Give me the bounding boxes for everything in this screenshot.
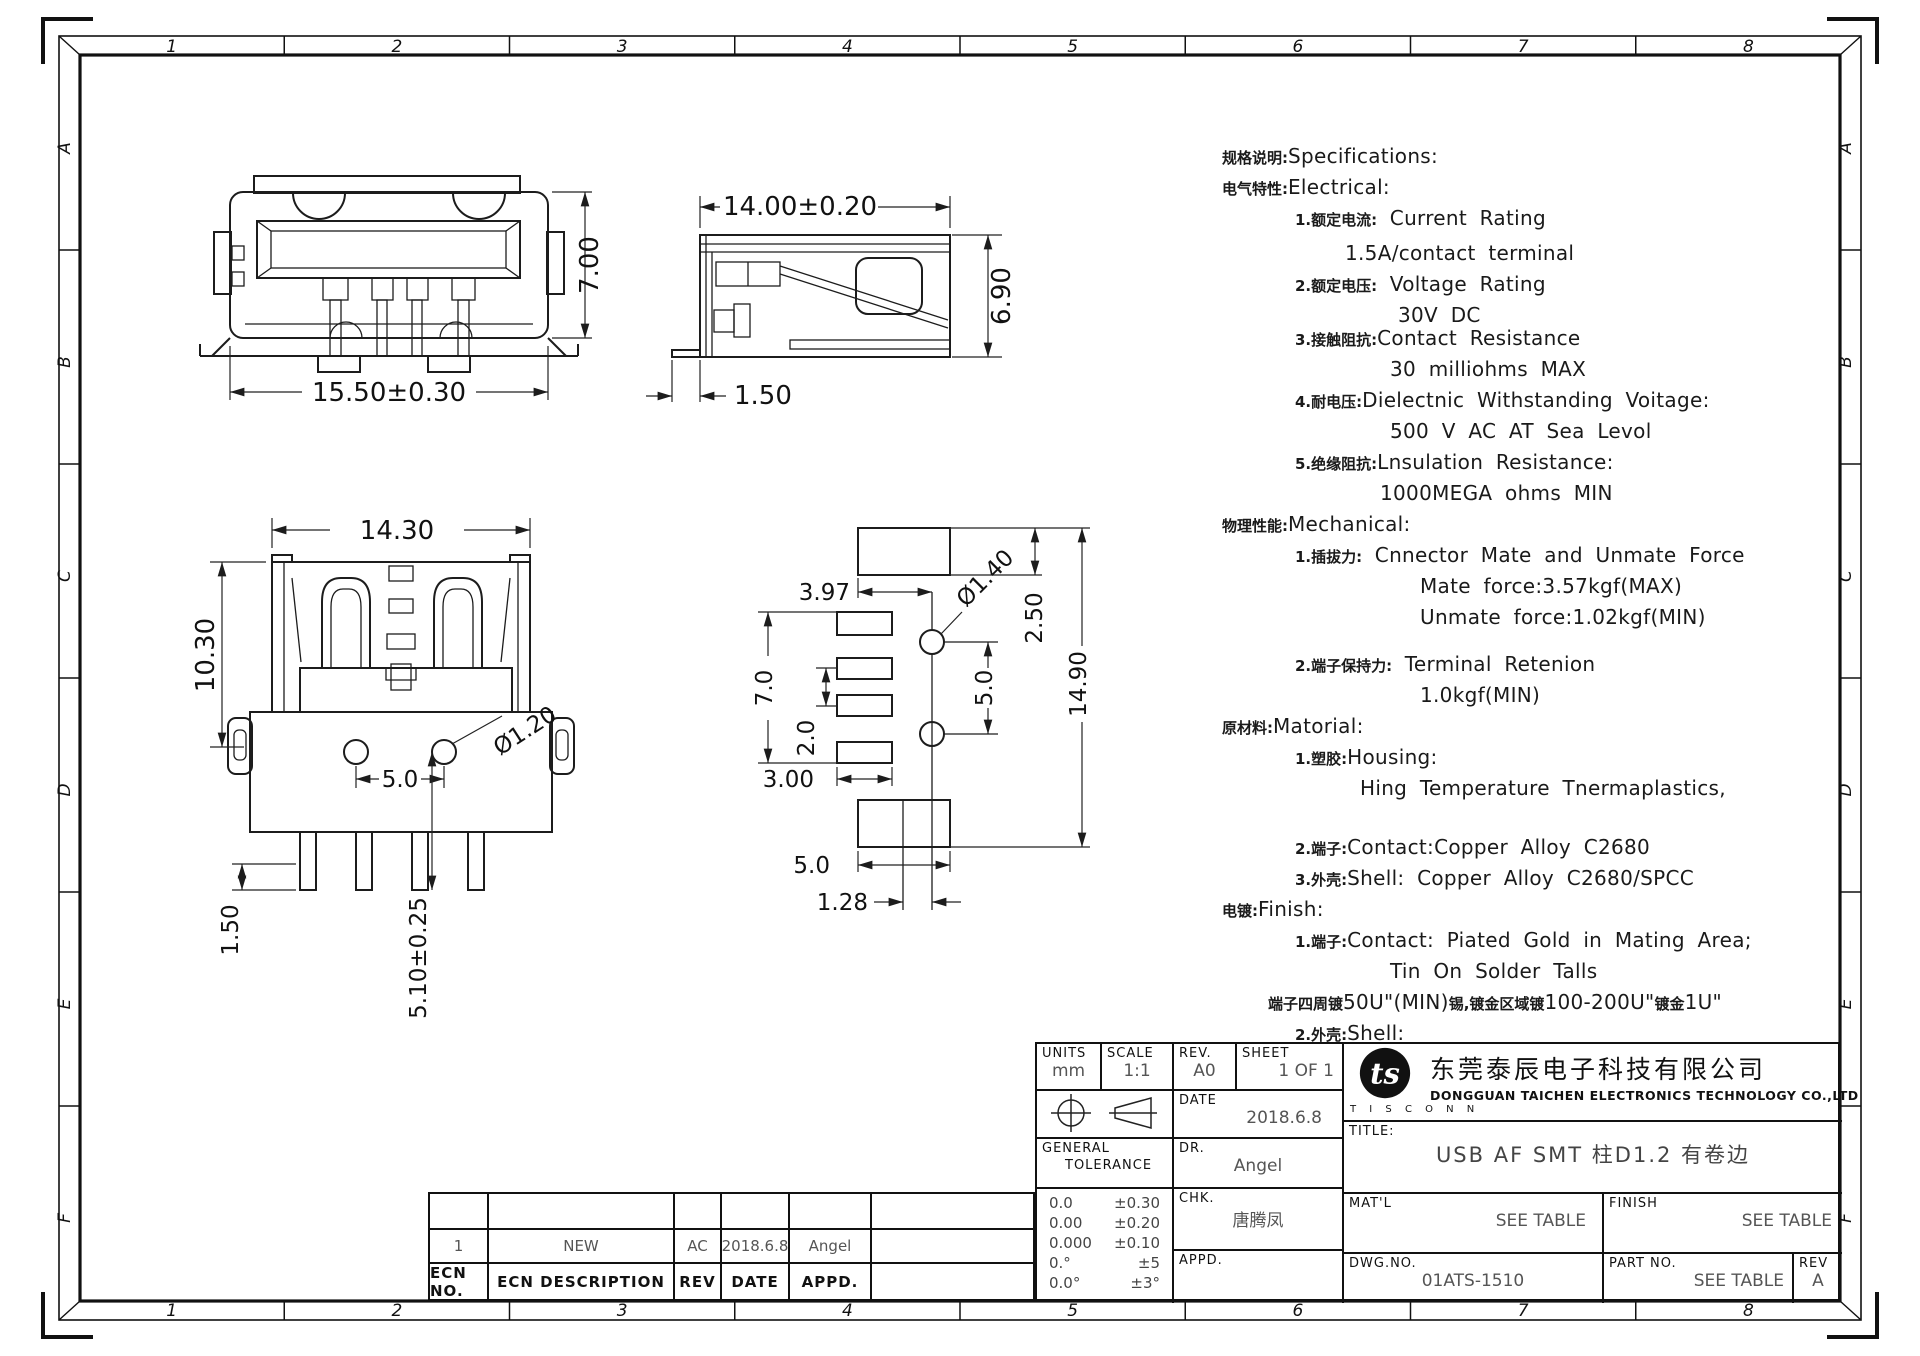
sheet-cell: SHEET 1 OF 1 bbox=[1237, 1044, 1342, 1089]
spec-text: 原材料: bbox=[1222, 719, 1273, 737]
general-tolerance-cell: GENERAL TOLERANCE bbox=[1037, 1137, 1174, 1187]
dim-bottom-width: 14.30 bbox=[360, 516, 434, 546]
logo-text: T I S C O N N bbox=[1350, 1104, 1479, 1115]
partno-cell: PART NO. SEE TABLE bbox=[1602, 1252, 1792, 1303]
spec-text: Current Rating bbox=[1377, 206, 1546, 230]
spec-text: 电气特性: bbox=[1222, 180, 1288, 198]
ecn-empty-cell bbox=[489, 1194, 675, 1228]
finish-cell: FINISH SEE TABLE bbox=[1602, 1192, 1842, 1252]
ecn-description-header: ECN DESCRIPTION bbox=[489, 1262, 675, 1299]
dim-fp-total-height: 14.90 bbox=[1066, 651, 1092, 717]
spec-text: Contact: Piated Gold in Mating Area; bbox=[1347, 928, 1752, 952]
spec-text: Finish: bbox=[1258, 897, 1324, 921]
spec-text: Lnsulation Resistance: bbox=[1377, 450, 1614, 474]
dim-side-height: 6.90 bbox=[987, 267, 1017, 325]
ecn-empty-cell bbox=[872, 1262, 1033, 1299]
partno-label: PART NO. bbox=[1604, 1254, 1792, 1271]
dim-front-height: 7.00 bbox=[575, 236, 605, 294]
spec-text: 1.0kgf(MIN) bbox=[1420, 683, 1540, 707]
ecn-empty-cell bbox=[872, 1228, 1033, 1262]
spec-line: Hing Temperature Tnermaplastics, bbox=[1222, 777, 1862, 801]
spec-line: 1.5A/contact terminal bbox=[1222, 242, 1862, 266]
dim-fp-pad-height: 2.50 bbox=[1022, 592, 1048, 643]
ecn-description-value: NEW bbox=[489, 1228, 675, 1262]
spec-text: 1U" bbox=[1685, 990, 1722, 1014]
spec-text: Hing Temperature Tnermaplastics, bbox=[1360, 776, 1726, 800]
company-name-cn: 东莞泰辰电子科技有限公司 bbox=[1430, 1050, 1766, 1086]
tolerance-row: 0.°±5 bbox=[1037, 1253, 1172, 1273]
spec-line: 4.耐电压:Dielectnic Withstanding Voitage: bbox=[1222, 389, 1862, 413]
spec-line: 物理性能:Mechanical: bbox=[1222, 513, 1862, 537]
dim-bottom-leg: 1.50 bbox=[218, 904, 244, 955]
spec-text: 1.额定电流: bbox=[1295, 211, 1377, 229]
spec-text: 50U"(MIN) bbox=[1343, 990, 1449, 1014]
matl-value: SEE TABLE bbox=[1344, 1211, 1602, 1231]
chk-value: 唐腾凤 bbox=[1174, 1206, 1342, 1231]
dim-bottom-pitch: 5.0 bbox=[382, 767, 419, 793]
spec-text: Terminal Retenion bbox=[1392, 652, 1595, 676]
spec-text: 4.耐电压: bbox=[1295, 393, 1362, 411]
spec-line: 规格说明:Specifications: bbox=[1222, 145, 1862, 169]
spec-text: Contact Resistance bbox=[1377, 326, 1580, 350]
bottom-view: 14.30 10.30 Ø1.20 5.0 1.50 5.10±0.25 bbox=[191, 516, 574, 1019]
spec-line: 1.额定电流: Current Rating bbox=[1222, 207, 1862, 231]
dwgno-cell: DWG.NO. 01ATS-1510 bbox=[1342, 1252, 1602, 1303]
spec-text: 锡,镀金区域镀 bbox=[1449, 995, 1545, 1013]
ecn-date-value: 2018.6.8 bbox=[722, 1228, 790, 1262]
spec-line: 2.端子:Contact:Copper Alloy C2680 bbox=[1222, 836, 1862, 860]
title-block: UNITS mm SCALE 1:1 REV. A0 SHEET 1 OF 1 bbox=[1035, 1042, 1840, 1301]
spec-line: 2.额定电压: Voltage Rating bbox=[1222, 273, 1862, 297]
spec-text: 30V DC bbox=[1398, 303, 1481, 327]
ecn-date-header: DATE bbox=[722, 1262, 790, 1299]
spec-text: 30 milliohms MAX bbox=[1390, 357, 1586, 381]
sheet-value: 1 OF 1 bbox=[1237, 1061, 1342, 1081]
spec-line: Mate force:3.57kgf(MAX) bbox=[1222, 575, 1862, 599]
svg-text:ts: ts bbox=[1370, 1057, 1400, 1091]
spec-text: Shell: Copper Alloy C2680/SPCC bbox=[1347, 866, 1694, 890]
ecn-table: 1 NEW AC 2018.6.8 Angel ECN NO. ECN DESC… bbox=[428, 1192, 1035, 1301]
dim-fp-pad-offset: 3.97 bbox=[799, 580, 850, 606]
specifications: 规格说明:Specifications:电气特性:Electrical:1.额定… bbox=[1222, 138, 1862, 1122]
spec-text: 1.塑胶: bbox=[1295, 750, 1347, 768]
rev2-label: REV bbox=[1794, 1254, 1842, 1271]
sheet-label: SHEET bbox=[1237, 1044, 1342, 1061]
company-logo-icon: ts bbox=[1354, 1046, 1416, 1104]
spec-line: 2.端子保持力: Terminal Retenion bbox=[1222, 653, 1862, 677]
projection-cell bbox=[1037, 1089, 1174, 1137]
spec-text: 物理性能: bbox=[1222, 517, 1288, 535]
appd-label: APPD. bbox=[1174, 1251, 1342, 1268]
spec-text: Mate force:3.57kgf(MAX) bbox=[1420, 574, 1682, 598]
spec-line: Unmate force:1.02kgf(MIN) bbox=[1222, 606, 1862, 630]
spec-text: Contact:Copper Alloy C2680 bbox=[1347, 835, 1650, 859]
spec-text: Specifications: bbox=[1288, 144, 1438, 168]
tolerance-row: 0.000±0.10 bbox=[1037, 1233, 1172, 1253]
dim-front-width: 15.50±0.30 bbox=[312, 378, 466, 408]
ecn-empty-cell bbox=[790, 1194, 872, 1228]
spec-text: 3.接触阻抗: bbox=[1295, 331, 1377, 349]
spec-line: 电气特性:Electrical: bbox=[1222, 176, 1862, 200]
scale-cell: SCALE 1:1 bbox=[1102, 1044, 1174, 1089]
ecn-no-header: ECN NO. bbox=[430, 1262, 489, 1299]
rev2-value: A bbox=[1794, 1271, 1842, 1291]
tolerance-row: 0.0±0.30 bbox=[1037, 1193, 1172, 1213]
spec-text: 镀金 bbox=[1655, 995, 1685, 1013]
spec-text: Cnnector Mate and Unmate Force bbox=[1362, 543, 1745, 567]
spec-text: 1.端子: bbox=[1295, 933, 1347, 951]
spec-text: 规格说明: bbox=[1222, 149, 1288, 167]
dim-fp-pad2-width: 5.0 bbox=[793, 853, 830, 879]
ecn-appd-header: APPD. bbox=[790, 1262, 872, 1299]
matl-cell: MAT'L SEE TABLE bbox=[1342, 1192, 1602, 1252]
title-cell: TITLE: USB AF SMT 柱D1.2 有卷边 bbox=[1342, 1120, 1842, 1192]
units-label: UNITS bbox=[1037, 1044, 1100, 1061]
general-tolerance-label-2: TOLERANCE bbox=[1037, 1156, 1172, 1173]
footprint-view: 3.97 7.0 2.0 3.00 Ø1.40 2.50 bbox=[752, 528, 1092, 916]
front-view: 7.00 15.50±0.30 bbox=[200, 176, 605, 408]
units-value: mm bbox=[1037, 1061, 1100, 1081]
spec-line: 端子四周镀50U"(MIN)锡,镀金区域镀100-200U"镀金1U" bbox=[1222, 991, 1862, 1015]
title-label: TITLE: bbox=[1344, 1122, 1842, 1139]
spec-line: 1000MEGA ohms MIN bbox=[1222, 482, 1862, 506]
rev-value: A0 bbox=[1174, 1061, 1235, 1081]
dim-fp-hole-pitch: 5.0 bbox=[972, 670, 998, 707]
dim-fp-pad-width: 3.00 bbox=[763, 767, 814, 793]
spec-text: 端子四周镀 bbox=[1268, 995, 1343, 1013]
spec-text: Matorial: bbox=[1273, 714, 1364, 738]
spec-text: Voltage Rating bbox=[1377, 272, 1546, 296]
spec-text: Electrical: bbox=[1288, 175, 1390, 199]
spec-line: 1.端子:Contact: Piated Gold in Mating Area… bbox=[1222, 929, 1862, 953]
matl-label: MAT'L bbox=[1344, 1194, 1602, 1211]
spec-line: Tin On Solder Talls bbox=[1222, 960, 1862, 984]
spec-text: 5.绝缘阻抗: bbox=[1295, 455, 1377, 473]
partno-value: SEE TABLE bbox=[1604, 1271, 1792, 1291]
spec-text: 1.5A/contact terminal bbox=[1345, 241, 1574, 265]
dr-cell: DR. Angel bbox=[1174, 1137, 1342, 1187]
finish-label: FINISH bbox=[1604, 1194, 1842, 1211]
spec-text: Housing: bbox=[1347, 745, 1437, 769]
spec-text: 500 V AC AT Sea Levol bbox=[1390, 419, 1652, 443]
chk-cell: CHK. 唐腾凤 bbox=[1174, 1187, 1342, 1249]
spec-line: 5.绝缘阻抗:Lnsulation Resistance: bbox=[1222, 451, 1862, 475]
scale-label: SCALE bbox=[1102, 1044, 1172, 1061]
spec-line: 电镀:Finish: bbox=[1222, 898, 1862, 922]
company-band: ts T I S C O N N 东莞泰辰电子科技有限公司 DONGGUAN T… bbox=[1342, 1044, 1842, 1120]
tolerance-row: 0.00±0.20 bbox=[1037, 1213, 1172, 1233]
spec-line: 500 V AC AT Sea Levol bbox=[1222, 420, 1862, 444]
ecn-appd-value: Angel bbox=[790, 1228, 872, 1262]
spec-line: 3.接触阻抗:Contact Resistance bbox=[1222, 327, 1862, 351]
spec-text: 2.端子: bbox=[1295, 840, 1347, 858]
spec-line: 3.外壳:Shell: Copper Alloy C2680/SPCC bbox=[1222, 867, 1862, 891]
dim-side-foot: 1.50 bbox=[734, 381, 792, 411]
spec-line: 30V DC bbox=[1222, 304, 1862, 328]
date-label: DATE bbox=[1174, 1091, 1342, 1108]
chk-label: CHK. bbox=[1174, 1189, 1342, 1206]
finish-value: SEE TABLE bbox=[1604, 1211, 1842, 1231]
spec-text: 100-200U" bbox=[1544, 990, 1654, 1014]
company-name-en: DONGGUAN TAICHEN ELECTRONICS TECHNOLOGY … bbox=[1430, 1088, 1859, 1103]
ecn-empty-cell bbox=[675, 1194, 722, 1228]
spec-line: 1.0kgf(MIN) bbox=[1222, 684, 1862, 708]
ecn-rev-value: AC bbox=[675, 1228, 722, 1262]
dim-fp-pads-span: 7.0 bbox=[752, 670, 778, 707]
spec-text: 电镀: bbox=[1222, 902, 1258, 920]
ecn-empty-cell bbox=[872, 1194, 1033, 1228]
dwgno-label: DWG.NO. bbox=[1344, 1254, 1602, 1271]
tolerance-values: 0.0±0.300.00±0.200.000±0.100.°±50.0°±3° bbox=[1037, 1187, 1174, 1303]
spec-text: Unmate force:1.02kgf(MIN) bbox=[1420, 605, 1706, 629]
side-view: 14.00±0.20 6.90 1.50 bbox=[646, 192, 1017, 411]
dr-label: DR. bbox=[1174, 1139, 1342, 1156]
ecn-empty-cell bbox=[722, 1194, 790, 1228]
spec-text: Mechanical: bbox=[1288, 512, 1411, 536]
scale-value: 1:1 bbox=[1102, 1061, 1172, 1081]
dr-value: Angel bbox=[1174, 1156, 1342, 1176]
dim-fp-pad-pitch: 2.0 bbox=[794, 720, 820, 757]
tolerance-row: 0.0°±3° bbox=[1037, 1273, 1172, 1293]
spec-line: 30 milliohms MAX bbox=[1222, 358, 1862, 382]
spec-text: 1.插拔力: bbox=[1295, 548, 1362, 566]
spec-line: 原材料:Matorial: bbox=[1222, 715, 1862, 739]
appd-cell: APPD. bbox=[1174, 1249, 1342, 1303]
spec-text: 2.额定电压: bbox=[1295, 277, 1377, 295]
dim-fp-hole: Ø1.40 bbox=[952, 545, 1019, 612]
title-value: USB AF SMT 柱D1.2 有卷边 bbox=[1344, 1139, 1842, 1169]
rev-cell: REV. A0 bbox=[1174, 1044, 1237, 1089]
dim-bottom-height: 10.30 bbox=[191, 618, 221, 692]
spec-text: 3.外壳: bbox=[1295, 871, 1347, 889]
general-tolerance-label-1: GENERAL bbox=[1037, 1139, 1172, 1156]
date-value: 2018.6.8 bbox=[1174, 1108, 1342, 1128]
projection-symbol-icon bbox=[1037, 1091, 1171, 1135]
ecn-rev-header: REV bbox=[675, 1262, 722, 1299]
date-cell: DATE 2018.6.8 bbox=[1174, 1089, 1342, 1137]
rev2-cell: REV A bbox=[1792, 1252, 1842, 1303]
spec-text: Tin On Solder Talls bbox=[1390, 959, 1597, 983]
units-cell: UNITS mm bbox=[1037, 1044, 1102, 1089]
dim-fp-center-offset: 1.28 bbox=[817, 890, 868, 916]
dim-bottom-depth: 5.10±0.25 bbox=[406, 897, 432, 1019]
ecn-no-value: 1 bbox=[430, 1228, 489, 1262]
spec-line: 1.塑胶:Housing: bbox=[1222, 746, 1862, 770]
rev-label: REV. bbox=[1174, 1044, 1235, 1061]
spec-line: 1.插拔力: Cnnector Mate and Unmate Force bbox=[1222, 544, 1862, 568]
drawing-sheet: 1122334455667788AABBCCDDEEFF bbox=[0, 0, 1920, 1356]
spec-text: Dielectnic Withstanding Voitage: bbox=[1362, 388, 1710, 412]
spec-text: 2.端子保持力: bbox=[1295, 657, 1392, 675]
dim-side-width: 14.00±0.20 bbox=[723, 192, 877, 222]
spec-text: 1000MEGA ohms MIN bbox=[1380, 481, 1613, 505]
ecn-empty-cell bbox=[430, 1194, 489, 1228]
dwgno-value: 01ATS-1510 bbox=[1344, 1271, 1602, 1291]
